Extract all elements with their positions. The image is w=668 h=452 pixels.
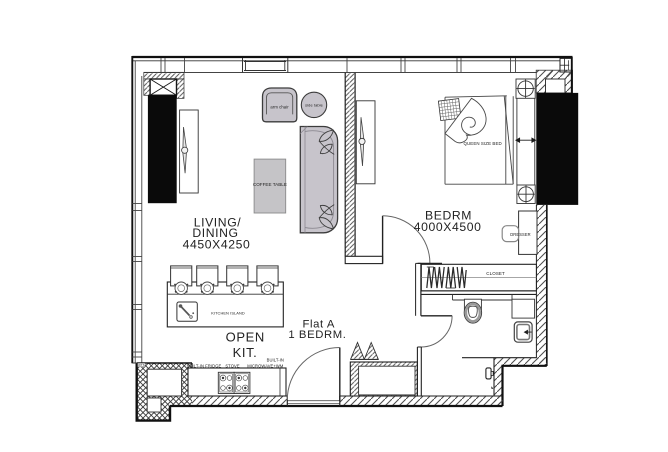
svg-text:KIT.: KIT. xyxy=(233,345,258,360)
svg-text:CLOSET: CLOSET xyxy=(486,271,505,276)
svg-text:OPEN: OPEN xyxy=(226,329,265,344)
svg-text:QUEEN SIZE BED: QUEEN SIZE BED xyxy=(464,141,502,146)
svg-text:COFFEE TABLE: COFFEE TABLE xyxy=(253,182,287,187)
svg-text:arm chair: arm chair xyxy=(270,104,289,109)
svg-text:STOVE: STOVE xyxy=(225,363,239,368)
svg-text:BUILT-IN: BUILT-IN xyxy=(267,358,284,363)
svg-text:MICROWAVE+WM: MICROWAVE+WM xyxy=(247,363,284,368)
svg-text:1 BEDRM.: 1 BEDRM. xyxy=(288,329,346,341)
svg-text:WTS: WTS xyxy=(138,363,145,367)
svg-text:KITCHEN ISLAND: KITCHEN ISLAND xyxy=(211,310,245,315)
svg-text:BUILT-IN FRIDGE: BUILT-IN FRIDGE xyxy=(187,363,222,368)
svg-text:side table: side table xyxy=(305,103,323,108)
svg-text:DRESSER: DRESSER xyxy=(510,232,531,237)
svg-text:4450X4250: 4450X4250 xyxy=(183,237,251,251)
svg-text:4000X4500: 4000X4500 xyxy=(414,220,482,234)
